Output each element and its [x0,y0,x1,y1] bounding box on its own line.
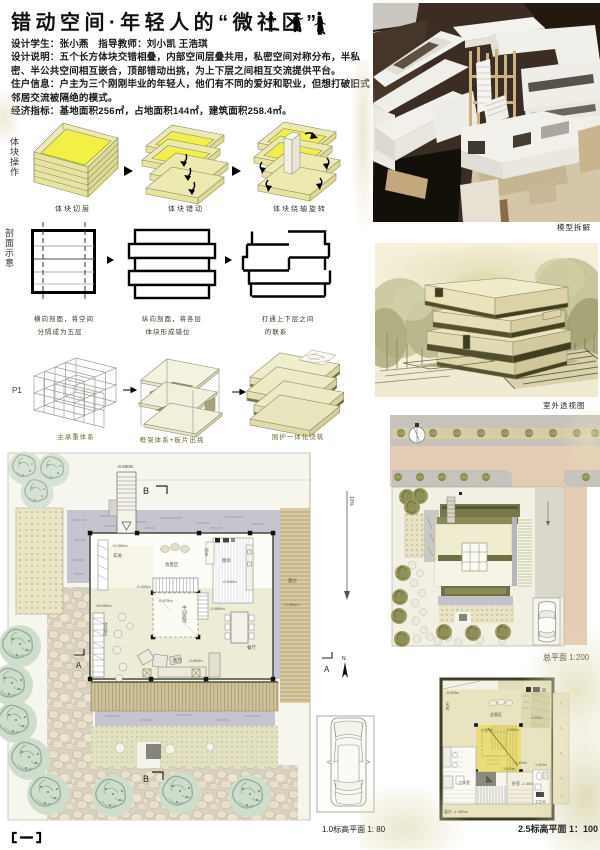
svg-text:A: A [76,661,82,670]
svg-text:餐厅: 餐厅 [247,644,256,651]
svg-text:体块错动: 体块错动 [168,204,204,213]
svg-text:10%: 10% [348,496,354,507]
svg-text:玄关: 玄关 [113,552,122,559]
svg-text:-1.400m: -1.400m [502,767,515,771]
svg-text:-2.300m: -2.300m [506,728,519,732]
svg-text:分隔成为五层: 分隔成为五层 [38,327,83,336]
svg-text:-0.900m: -0.900m [284,602,299,607]
svg-text:-1.400m: -1.400m [514,761,527,765]
svg-text:纵向剖面，将各层: 纵向剖面，将各层 [142,314,202,323]
svg-text:+0.900m: +0.900m [112,543,128,548]
svg-text:-0.975m: -0.975m [158,598,173,603]
svg-text:-0.300m: -0.300m [136,584,151,589]
svg-text:的联系: 的联系 [265,327,288,336]
svg-text:-0.500m: -0.500m [117,464,134,469]
svg-text:讨论区: 讨论区 [103,621,109,636]
svg-text:主承重体系: 主承重体系 [57,432,95,441]
svg-text:露台: 露台 [288,577,297,584]
svg-text:吧台: 吧台 [205,548,210,557]
svg-text:中间庭院: 中间庭院 [182,604,188,625]
svg-text:客厅: 客厅 [173,657,182,664]
svg-text:-1.400m: -1.400m [480,728,493,732]
svg-text:B: B [143,486,149,496]
svg-text:N: N [342,656,346,662]
svg-text:-0.690m: -0.690m [222,579,237,584]
svg-text:体块形成错位: 体块形成错位 [146,327,191,336]
svg-text:-0.890m: -0.890m [188,658,203,663]
svg-text:玄关: 玄关 [446,701,451,711]
svg-text:会客区: 会客区 [490,711,502,717]
svg-text:-0.890m: -0.890m [210,606,225,611]
svg-text:框架体系+板片出挑: 框架体系+板片出挑 [140,435,205,444]
svg-text:会客区: 会客区 [165,561,179,568]
svg-text:体块切层: 体块切层 [55,204,91,213]
svg-text:厨房: 厨房 [222,557,231,564]
svg-text:打通上下层之间: 打通上下层之间 [262,314,315,323]
svg-text:体块绕轴旋转: 体块绕轴旋转 [273,204,327,213]
svg-text:B: B [143,774,149,784]
svg-text:围护一体化浇筑: 围护一体化浇筑 [272,432,325,441]
svg-text:±0.000m: ±0.000m [96,603,112,608]
svg-text:A: A [324,665,330,674]
svg-text:-5.900m: -5.900m [446,691,459,695]
svg-text:横向剖面，将空间: 横向剖面，将空间 [34,314,94,323]
